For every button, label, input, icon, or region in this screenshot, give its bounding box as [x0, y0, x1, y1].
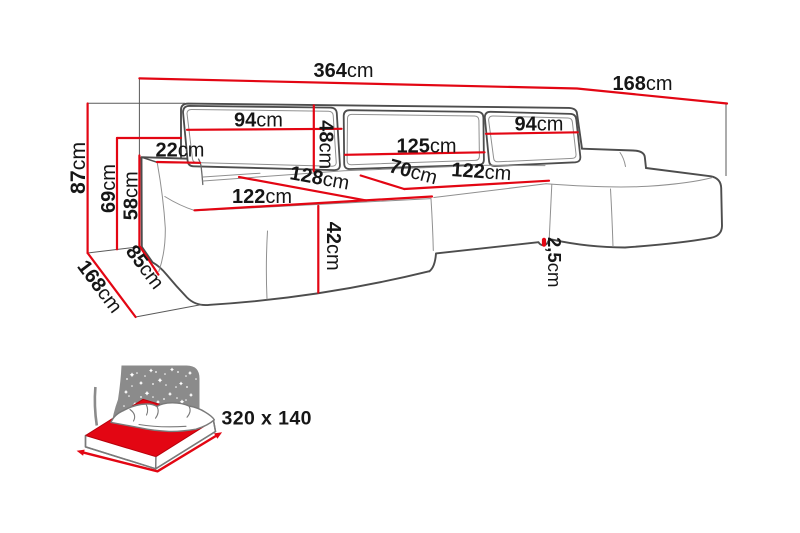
svg-text:168cm: 168cm: [613, 73, 673, 95]
svg-text:122cm: 122cm: [451, 159, 512, 185]
svg-text:87cm: 87cm: [66, 142, 90, 194]
svg-text:122cm: 122cm: [232, 186, 292, 208]
svg-text:125cm: 125cm: [397, 135, 457, 157]
svg-text:94cm: 94cm: [515, 113, 564, 135]
svg-text:58cm: 58cm: [121, 171, 143, 220]
svg-text:94cm: 94cm: [234, 109, 283, 131]
svg-text:320 x 140: 320 x 140: [222, 407, 312, 429]
svg-text:22cm: 22cm: [156, 139, 205, 161]
svg-text:2,5cm: 2,5cm: [544, 237, 565, 287]
svg-text:42cm: 42cm: [322, 222, 344, 271]
svg-text:69cm: 69cm: [98, 164, 120, 213]
svg-text:48cm: 48cm: [315, 120, 337, 169]
svg-text:364cm: 364cm: [314, 60, 374, 82]
